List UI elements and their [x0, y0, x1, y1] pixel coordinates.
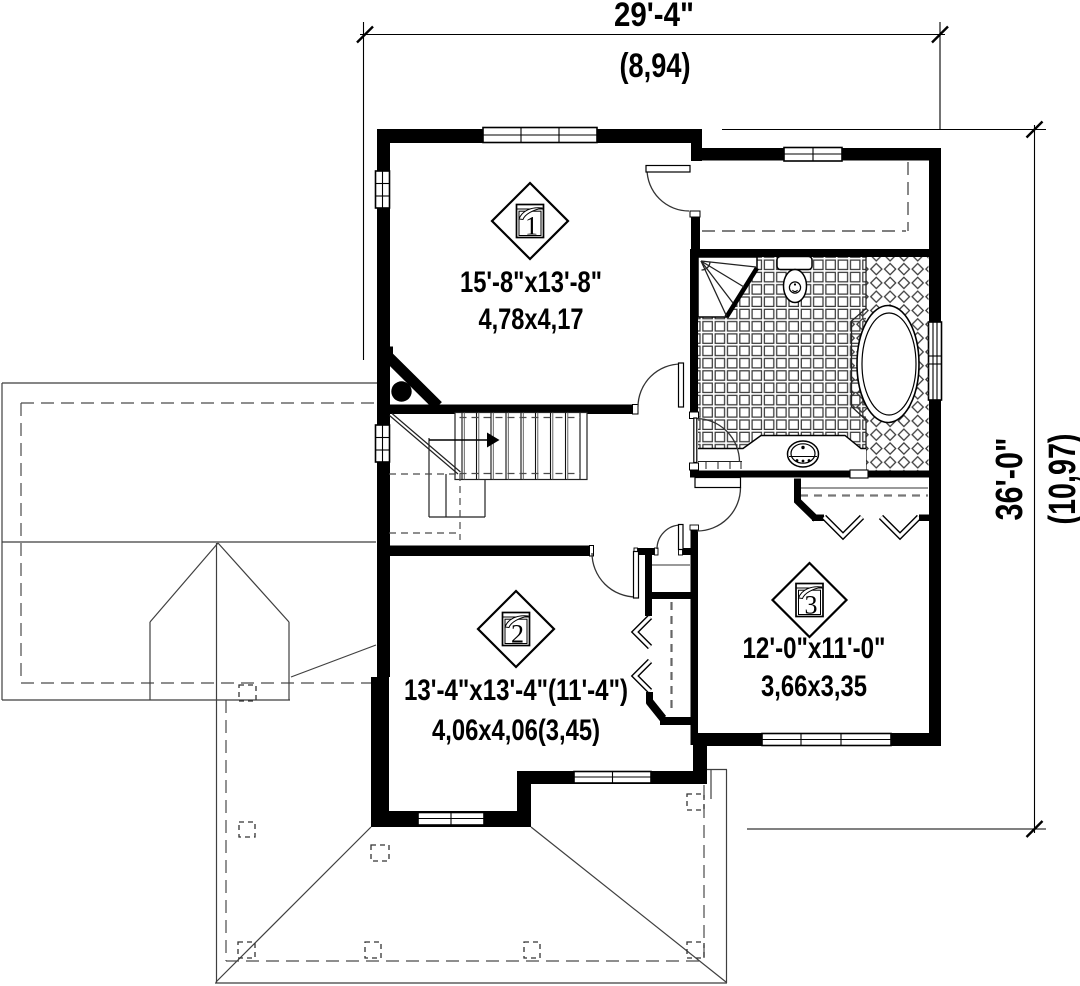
svg-text:3,66x3,35: 3,66x3,35 [761, 670, 867, 703]
svg-text:13'-4"x13'-4"(11'-4"): 13'-4"x13'-4"(11'-4") [404, 674, 628, 707]
svg-text:4,78x4,17: 4,78x4,17 [479, 303, 584, 336]
svg-text:1: 1 [525, 212, 538, 241]
svg-text:(8,94): (8,94) [620, 47, 691, 85]
svg-text:2: 2 [511, 620, 524, 649]
svg-text:3: 3 [805, 591, 818, 620]
svg-text:12'-0"x11'-0": 12'-0"x11'-0" [743, 632, 886, 665]
svg-text:36'-0": 36'-0" [989, 438, 1031, 521]
svg-text:15'-8"x13'-8": 15'-8"x13'-8" [460, 266, 602, 299]
svg-text:4,06x4,06(3,45): 4,06x4,06(3,45) [432, 714, 600, 747]
svg-text:29'-4": 29'-4" [614, 0, 694, 34]
svg-text:(10,97): (10,97) [1042, 434, 1080, 525]
